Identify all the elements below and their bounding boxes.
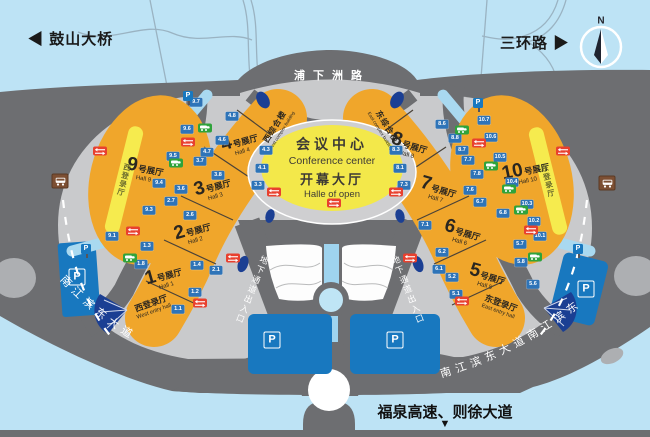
gate-tag-3.6: 3.6 [175,185,188,194]
gate-arrows-icon [226,254,240,263]
parking-sign-icon: P [183,91,193,101]
gate-tag-7.1: 7.1 [419,221,432,230]
gate-arrows-icon [327,199,341,208]
gate-tag-1.1: 1.1 [172,305,185,314]
shuttle-icon [198,124,212,133]
gate-tag-5.2: 5.2 [446,273,459,282]
gate-arrows-icon [556,147,570,156]
gate-tag-8.8: 8.8 [449,134,462,143]
gate-arrows-icon [524,226,538,235]
gate-arrows-icon [181,138,195,147]
gate-tag-6.1: 6.1 [433,265,446,274]
gate-tag-6.2: 6.2 [436,248,449,257]
gate-tag-3.8: 3.8 [212,171,225,180]
compass-north-label: N [597,16,604,27]
conference-title-en: Conference center [252,155,412,168]
gate-tag-5.6: 5.6 [527,280,540,289]
gate-tag-4.6: 4.6 [216,136,229,145]
gate-tag-4.1: 4.1 [256,164,269,173]
third-ring-text: 三环路 [500,35,548,52]
arrow-down-icon: ▼ [440,418,451,430]
gate-tag-4.7: 4.7 [201,148,214,157]
gate-tag-10.5: 10.5 [494,153,507,162]
arrow-left-icon: ◀ [28,31,44,48]
gate-tag-7.6: 7.6 [464,186,477,195]
gate-tag-6.8: 6.8 [497,209,510,218]
gate-tag-4.3: 4.3 [260,146,273,155]
gate-tag-8.7: 8.7 [456,146,469,155]
gate-arrows-icon [455,297,469,306]
exhibition-center-map: 南江滨东大道 南江滨东大道南江滨东 ◀ 鼓山大桥 三环路 ▶ N 浦下洲路 地下… [0,0,650,437]
gate-tag-4.8: 4.8 [226,112,239,121]
road-label-gushan-bridge: ◀ 鼓山大桥 [28,28,113,49]
gate-tag-1.4: 1.4 [191,261,204,270]
gate-tag-9.6: 9.6 [181,125,194,134]
gate-tag-3.7: 3.7 [194,157,207,166]
parking-lot-icon: P [578,281,595,298]
gate-tag-8.1: 8.1 [394,164,407,173]
opening-hall-cn: 开幕大厅 [252,172,412,188]
gate-tag-9.3: 9.3 [143,206,156,215]
road-label-puxiazhou: 浦下洲路 [257,67,407,83]
gate-arrows-icon [389,188,403,197]
gushan-bridge-text: 鼓山大桥 [49,31,113,48]
gate-arrows-icon [267,188,281,197]
shuttle-icon [514,206,528,215]
gate-tag-2.6: 2.6 [184,211,197,220]
shuttle-icon [169,159,183,168]
map-canvas: 南江滨东大道 南江滨东大道南江滨东 [0,0,650,437]
gate-tag-3.3: 3.3 [252,181,265,190]
gate-tag-10.7: 10.7 [478,116,491,125]
gate-tag-5.8: 5.8 [515,258,528,267]
gate-arrows-icon [403,254,417,263]
gate-tag-8.3: 8.3 [390,146,403,155]
gate-tag-10.2: 10.2 [528,217,541,226]
gate-tag-8.6: 8.6 [436,120,449,129]
gate-arrows-icon [472,139,486,148]
gate-arrows-icon [93,147,107,156]
arrow-right-icon: ▶ [553,35,569,52]
parking-sign-icon: P [573,244,583,254]
shuttle-icon [455,126,469,135]
shuttle-icon [528,253,542,262]
parking-lot-icon: P [387,332,404,349]
gate-arrows-icon [193,299,207,308]
gate-tag-1.3: 1.3 [141,242,154,251]
gate-tag-9.1: 9.1 [106,232,119,241]
parking-lot-icon: P [264,332,281,349]
parking-sign-icon: P [473,98,483,108]
shuttle-icon [123,254,137,263]
gate-tag-2.7: 2.7 [165,197,178,206]
shuttle-icon [502,185,516,194]
road-label-third-ring: 三环路 ▶ [500,32,569,53]
gate-tag-6.7: 6.7 [474,198,487,207]
parking-sign-icon: P [81,244,91,254]
bus-stop-icon [599,176,616,191]
gate-arrows-icon [126,227,140,236]
bus-stop-icon [52,174,69,189]
gate-tag-10.6: 10.6 [485,133,498,142]
gate-tag-7.7: 7.7 [462,156,475,165]
gate-tag-1.2: 1.2 [189,288,202,297]
gate-tag-7.8: 7.8 [471,170,484,179]
parking-lot-icon: P [69,269,86,286]
compass-icon [581,27,621,67]
shuttle-icon [484,162,498,171]
gate-tag-5.7: 5.7 [514,240,527,249]
gate-tag-2.1: 2.1 [210,266,223,275]
gate-tag-9.4: 9.4 [153,179,166,188]
